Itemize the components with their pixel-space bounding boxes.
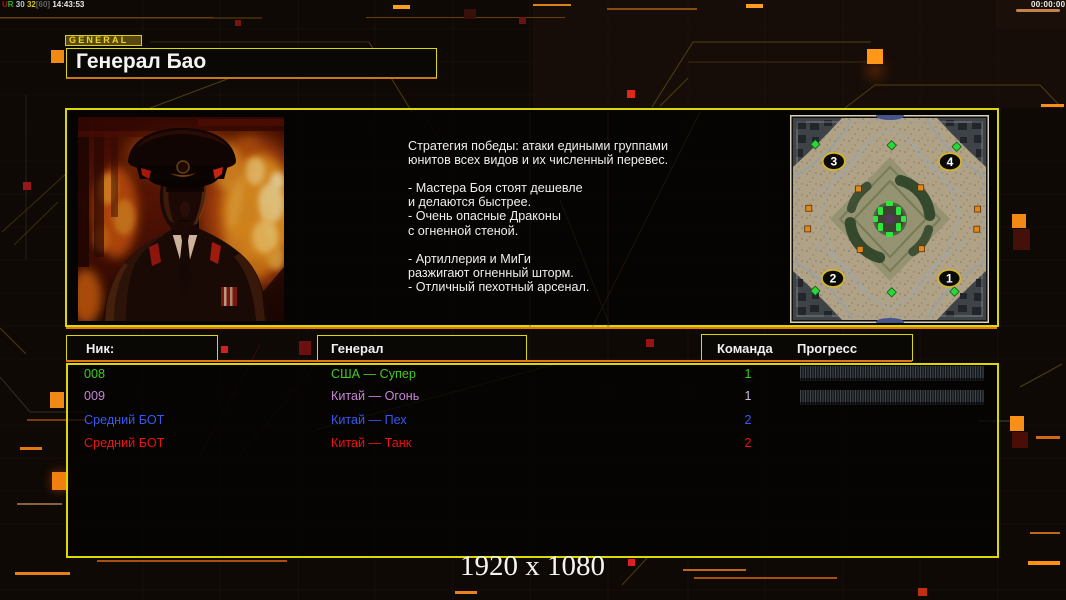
svg-text:1: 1: [946, 272, 953, 286]
svg-text:2: 2: [830, 272, 837, 286]
svg-text:3: 3: [830, 155, 837, 169]
svg-text:4: 4: [947, 155, 954, 169]
